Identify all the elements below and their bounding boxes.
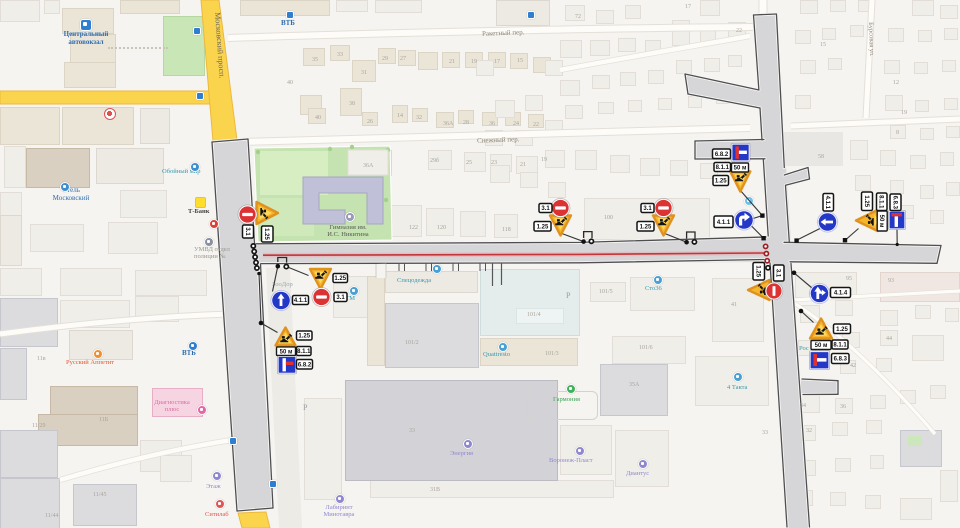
svg-text:1.25: 1.25 [755, 265, 761, 277]
svg-text:1.25: 1.25 [334, 276, 346, 282]
svg-text:1.25: 1.25 [537, 224, 549, 230]
svg-text:6.8.3: 6.8.3 [891, 196, 897, 210]
svg-text:3.1: 3.1 [244, 227, 250, 236]
svg-text:1.25: 1.25 [863, 195, 869, 207]
svg-text:8.1.1: 8.1.1 [833, 343, 847, 349]
svg-text:1.25: 1.25 [836, 327, 848, 333]
svg-text:1.25: 1.25 [298, 334, 310, 340]
svg-text:3.1: 3.1 [336, 295, 345, 301]
svg-text:3.1: 3.1 [541, 206, 550, 212]
svg-text:8.1.1: 8.1.1 [716, 165, 730, 171]
svg-text:6.8.2: 6.8.2 [715, 152, 729, 158]
svg-text:50 м: 50 м [280, 349, 293, 355]
svg-text:50 м: 50 м [878, 215, 884, 228]
svg-text:6.8.3: 6.8.3 [834, 357, 848, 363]
svg-text:3.1: 3.1 [775, 269, 781, 278]
svg-text:3.1: 3.1 [643, 206, 652, 212]
svg-text:8.1.1: 8.1.1 [297, 349, 311, 355]
svg-text:4.1.4: 4.1.4 [834, 291, 848, 297]
svg-text:8.1.1: 8.1.1 [878, 195, 884, 209]
svg-text:50 м: 50 м [734, 166, 747, 172]
svg-text:50 м: 50 м [815, 343, 828, 349]
svg-text:1.25: 1.25 [263, 228, 269, 240]
svg-text:1.25: 1.25 [640, 224, 652, 230]
svg-text:1.25: 1.25 [715, 179, 727, 185]
svg-text:4.1.1: 4.1.1 [294, 298, 308, 304]
svg-text:4.1.1: 4.1.1 [717, 220, 731, 226]
svg-text:4.1.1: 4.1.1 [824, 196, 830, 210]
svg-text:6.8.2: 6.8.2 [298, 362, 312, 368]
